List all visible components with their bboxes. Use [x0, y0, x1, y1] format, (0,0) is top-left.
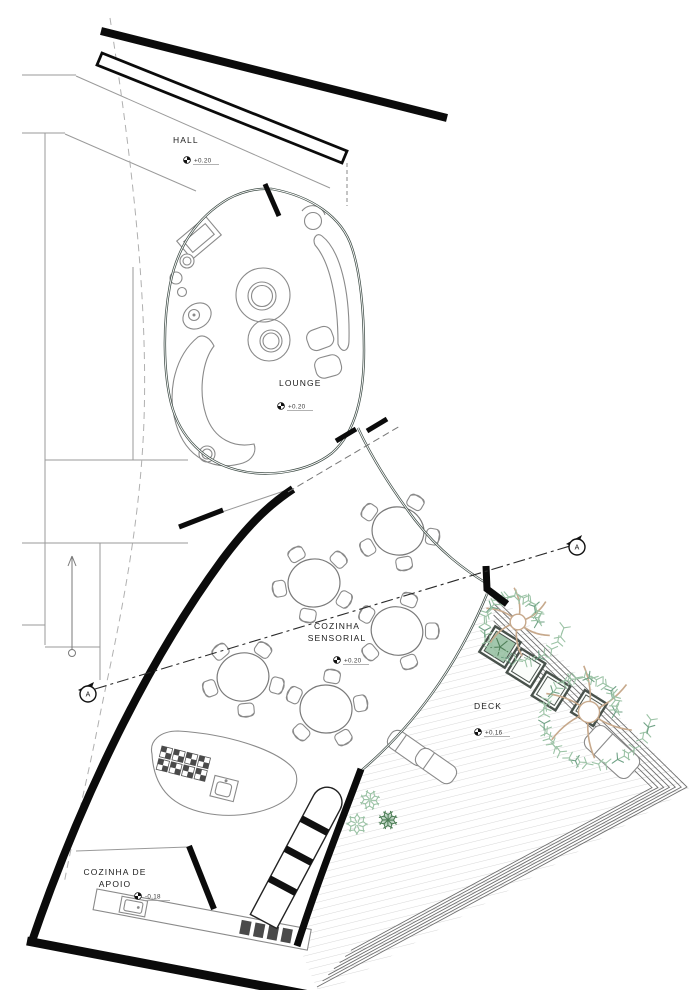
floor-plan-drawing: A A HALL +0.20 LOUNGE +0.20 COZINHA SENS… [0, 0, 700, 990]
wall-stub [179, 510, 223, 527]
dining-chair [201, 679, 219, 699]
level-sensorial: +0.20 [344, 658, 362, 665]
room-label-deck: DECK [474, 701, 502, 711]
dining-table-group [201, 639, 286, 717]
door-jamb [336, 429, 356, 441]
dining-chair [323, 668, 341, 684]
level-marker-hall [184, 157, 191, 164]
section-letter: A [86, 692, 91, 699]
kitchen-island [152, 731, 297, 815]
apoio-partition-stub [189, 846, 214, 909]
room-label-sensorial-1: COZINHA [314, 621, 360, 631]
lounge-furniture [170, 206, 349, 512]
door-jamb [367, 419, 387, 431]
room-label-apoio-2: APOIO [99, 879, 131, 889]
dining-table-group [356, 590, 439, 671]
round-rug-large [236, 268, 290, 322]
room-label-hall: HALL [173, 135, 199, 145]
level-marker-apoio [135, 893, 142, 900]
dining-chair [271, 580, 287, 598]
level-marker-lounge [278, 403, 285, 410]
dining-table-group [357, 492, 441, 572]
room-label-sensorial-2: SENSORIAL [308, 633, 367, 643]
dining-chair [353, 694, 369, 712]
level-deck: +0.16 [485, 730, 503, 737]
section-marker-a-left: A [78, 682, 96, 702]
curved-sofa [172, 336, 255, 466]
dining-chair [399, 590, 419, 608]
top-wall-inner [97, 53, 347, 163]
tree-trunk [510, 614, 526, 630]
dining-chair [399, 653, 419, 671]
bottom-facade-wall [27, 941, 320, 990]
level-lounge: +0.20 [288, 404, 306, 411]
lounge-seat [313, 353, 344, 380]
entrance-arrow [68, 556, 76, 657]
level-apoio: -0.18 [145, 894, 161, 901]
section-letter: A [575, 545, 580, 552]
southwest-facade-wall [31, 489, 293, 944]
round-rug-small [248, 319, 290, 361]
room-label-apoio-1: COZINHA DE [84, 867, 147, 877]
dining-chair [395, 556, 413, 572]
level-marker-deck [475, 729, 482, 736]
room-label-lounge: LOUNGE [279, 378, 322, 388]
floor-plan-page: A A HALL +0.20 LOUNGE +0.20 COZINHA SENS… [0, 0, 700, 990]
desk-chair [180, 254, 194, 268]
dining-chair [425, 528, 441, 546]
dining-table-group [271, 544, 355, 624]
dining-tables [201, 492, 441, 748]
lounge-seat [304, 324, 336, 353]
dining-table [298, 683, 354, 735]
dining-chair [268, 676, 285, 695]
dining-table-group [284, 668, 369, 748]
tree-trunk [578, 701, 599, 722]
lounge-stool [178, 298, 216, 335]
side-table [178, 288, 187, 297]
level-hall: +0.20 [194, 158, 212, 165]
dining-chair [426, 623, 440, 639]
section-marker-a-right: A [566, 535, 585, 555]
level-marker-sensorial [334, 657, 341, 664]
corner-table [305, 213, 322, 230]
dining-chair [238, 703, 255, 718]
